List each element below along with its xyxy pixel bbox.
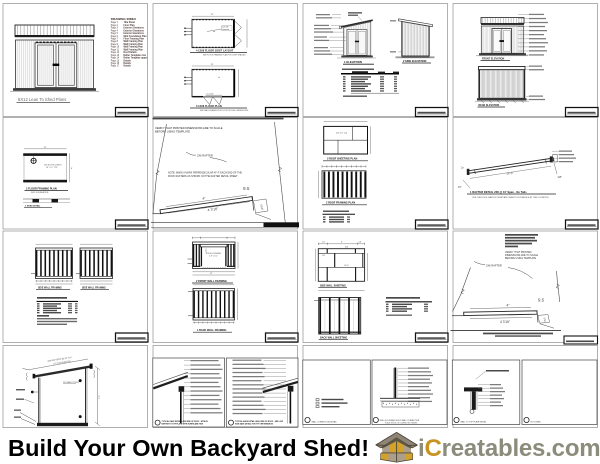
svg-text:Skid Foundation Plan: Skid Foundation Plan xyxy=(124,35,148,38)
svg-text:16" O.C. TYP.: 16" O.C. TYP. xyxy=(46,167,58,169)
svg-text:Page 3: Page 3 xyxy=(111,28,119,30)
svg-text:Page 6: Page 6 xyxy=(111,36,119,38)
svg-text:2 SIDE ELEVATION: 2 SIDE ELEVATION xyxy=(403,59,427,63)
svg-text:1-8: 1-8 xyxy=(322,242,325,244)
svg-text:SIDE WALL FRAMING: SIDE WALL FRAMING xyxy=(38,287,62,290)
svg-text:REAR ELEVATION: REAR ELEVATION xyxy=(479,104,500,107)
svg-text:2X6 RAFTER: 2X6 RAFTER xyxy=(486,264,502,268)
svg-text:Floor Plan: Floor Plan xyxy=(124,24,136,27)
svg-text:4x8 1/2" osb: 4x8 1/2" osb xyxy=(336,133,348,135)
svg-text:2X6 RAFTER: 2X6 RAFTER xyxy=(197,153,213,157)
svg-text:Title Sheet: Title Sheet xyxy=(124,21,136,24)
svg-text:SIDE WALL SHEETING: SIDE WALL SHEETING xyxy=(320,285,346,288)
svg-text:USE THE ROOF RAFTER TEMPLATE S: USE THE ROOF RAFTER TEMPLATE SHEETS FOR … xyxy=(472,196,549,199)
svg-text:3 ROOF SHEETING PLAN: 3 ROOF SHEETING PLAN xyxy=(327,158,357,161)
svg-text:BEFORE USING TEMPLATE: BEFORE USING TEMPLATE xyxy=(155,130,190,134)
svg-text:WALL CONNECTION DETAIL: WALL CONNECTION DETAIL xyxy=(312,421,337,424)
svg-text:4x8: 4x8 xyxy=(345,247,348,249)
svg-text:3/8": 3/8" xyxy=(558,175,563,179)
svg-text:45°: 45° xyxy=(458,186,462,189)
svg-text:Page 9: Page 9 xyxy=(111,44,119,46)
svg-text:SIDE EAVE DETAIL FOR TYP. INFO: SIDE EAVE DETAIL FOR TYP. INFORMATION xyxy=(235,423,274,426)
svg-text:1 BACK WALL FRAMING: 1 BACK WALL FRAMING xyxy=(197,329,226,332)
svg-text:Page 15: Page 15 xyxy=(111,60,120,62)
svg-text:SEE FLOOR FRAMING PLAN FOR JOI: SEE FLOOR FRAMING PLAN FOR JOIST SPACING xyxy=(203,54,246,57)
svg-text:Page 2: Page 2 xyxy=(111,25,119,27)
svg-text:4 7/16": 4 7/16" xyxy=(500,320,510,324)
svg-text:4 12X8 FLOOR JOIST LAYOUT: 4 12X8 FLOOR JOIST LAYOUT xyxy=(196,49,234,53)
svg-text:Details: Details xyxy=(124,65,132,68)
svg-text:Page 17: Page 17 xyxy=(111,66,120,68)
svg-text:Details: Details xyxy=(124,59,132,62)
svg-text:2 ROOF FRAMING PLAN: 2 ROOF FRAMING PLAN xyxy=(326,202,355,205)
svg-text:NOT USED: NOT USED xyxy=(531,422,542,424)
svg-text:Page 1: Page 1 xyxy=(111,22,119,24)
svg-text:7'-2": 7'-2" xyxy=(99,395,101,400)
svg-text:SKID FOUNDATION: SKID FOUNDATION xyxy=(31,191,49,194)
svg-text:Page 14: Page 14 xyxy=(111,58,120,60)
svg-text:4": 4" xyxy=(507,303,510,307)
svg-text:Wall Framing Plan: Wall Framing Plan xyxy=(124,40,144,43)
svg-text:Wall Framing Plan: Wall Framing Plan xyxy=(124,46,144,49)
svg-text:SEE WALL FRAMING FOR DOOR ROUG: SEE WALL FRAMING FOR DOOR ROUGH OPENING … xyxy=(200,109,249,112)
svg-text:1 RAFTER DETAIL 2X6 @ 10' Sp: 1 RAFTER DETAIL 2X6 @ 10' Span - No Tail… xyxy=(470,190,527,194)
svg-text:BEFORE USING TEMPLATE: BEFORE USING TEMPLATE xyxy=(505,257,537,260)
svg-text:FRONT ELEVATION: FRONT ELEVATION xyxy=(482,58,504,61)
svg-text:Page 8: Page 8 xyxy=(111,41,119,43)
svg-text:8X12 Lean To Shed Plans: 8X12 Lean To Shed Plans xyxy=(18,97,66,102)
svg-text:SIDE WALL FRAMING: SIDE WALL FRAMING xyxy=(82,287,106,290)
svg-text:Wall Framing Plan: Wall Framing Plan xyxy=(124,43,144,46)
svg-text:3 SKID DETAIL: 3 SKID DETAIL xyxy=(25,205,41,208)
svg-text:Roof Details: Roof Details xyxy=(124,51,138,54)
svg-text:ROOF RAFTERS AS SHOWN ON THE R: ROOF RAFTERS AS SHOWN ON THE RAFTER DETA… xyxy=(168,175,238,178)
svg-text:3 12X8 FLOOR PLAN: 3 12X8 FLOOR PLAN xyxy=(196,104,222,108)
svg-text:Rafter Template upper: Rafter Template upper xyxy=(124,57,148,60)
svg-text:WALL TO TOP PLATE DETAIL: WALL TO TOP PLATE DETAIL xyxy=(461,421,487,424)
svg-text:2 FLOOR FRAMING PLAN: 2 FLOOR FRAMING PLAN xyxy=(26,187,57,190)
svg-text:1-8: 1-8 xyxy=(359,242,362,244)
svg-text:Floor Framing Plan: Floor Framing Plan xyxy=(124,38,145,41)
svg-text:Rafter Templates low: Rafter Templates low xyxy=(124,54,147,57)
svg-text:Page 11: Page 11 xyxy=(111,49,120,51)
svg-text:14.5: 14.5 xyxy=(322,255,325,257)
svg-text:5'-9" x 6'-1": 5'-9" x 6'-1" xyxy=(209,255,218,257)
svg-text:1 ELEVATION: 1 ELEVATION xyxy=(344,60,362,64)
svg-text:Page 10: Page 10 xyxy=(111,47,120,49)
svg-text:BACK WALL SHEETING: BACK WALL SHEETING xyxy=(320,337,347,340)
svg-text:Wall Framing Plan: Wall Framing Plan xyxy=(124,48,144,51)
svg-text:SKID, FLOOR AND WOOD WALL CONN: SKID, FLOOR AND WOOD WALL CONNECTION xyxy=(380,419,420,422)
svg-text:Exterior Elevations: Exterior Elevations xyxy=(124,29,145,32)
svg-text:Page 4: Page 4 xyxy=(111,30,119,32)
svg-text:Page 13: Page 13 xyxy=(111,55,120,57)
svg-text:Page 5: Page 5 xyxy=(111,33,119,35)
svg-text:PLACE SKIDS ON COMPACTED GRAVE: PLACE SKIDS ON COMPACTED GRAVEL xyxy=(385,421,417,424)
svg-text:Page 16: Page 16 xyxy=(111,63,120,65)
svg-text:RAFTER TO TOP PLATE WITH HURRI: RAFTER TO TOP PLATE WITH HURRICANE TIES xyxy=(162,423,204,426)
svg-text:plywood: plywood xyxy=(222,29,229,31)
svg-text:Exterior Elevations: Exterior Elevations xyxy=(124,32,145,35)
svg-text:9.5: 9.5 xyxy=(243,186,250,191)
svg-text:Details: Details xyxy=(124,62,132,65)
svg-text:Page 12: Page 12 xyxy=(111,52,120,54)
svg-text:2 FRONT WALL FRAMING: 2 FRONT WALL FRAMING xyxy=(196,280,227,283)
svg-text:Exterior Elevations: Exterior Elevations xyxy=(124,27,145,30)
svg-text:9.5: 9.5 xyxy=(538,297,545,302)
svg-text:2X4 WALL STUDS: 2X4 WALL STUDS xyxy=(63,381,80,384)
svg-text:DRAWING INDEX: DRAWING INDEX xyxy=(111,17,137,21)
svg-text:Page 7: Page 7 xyxy=(111,39,119,41)
